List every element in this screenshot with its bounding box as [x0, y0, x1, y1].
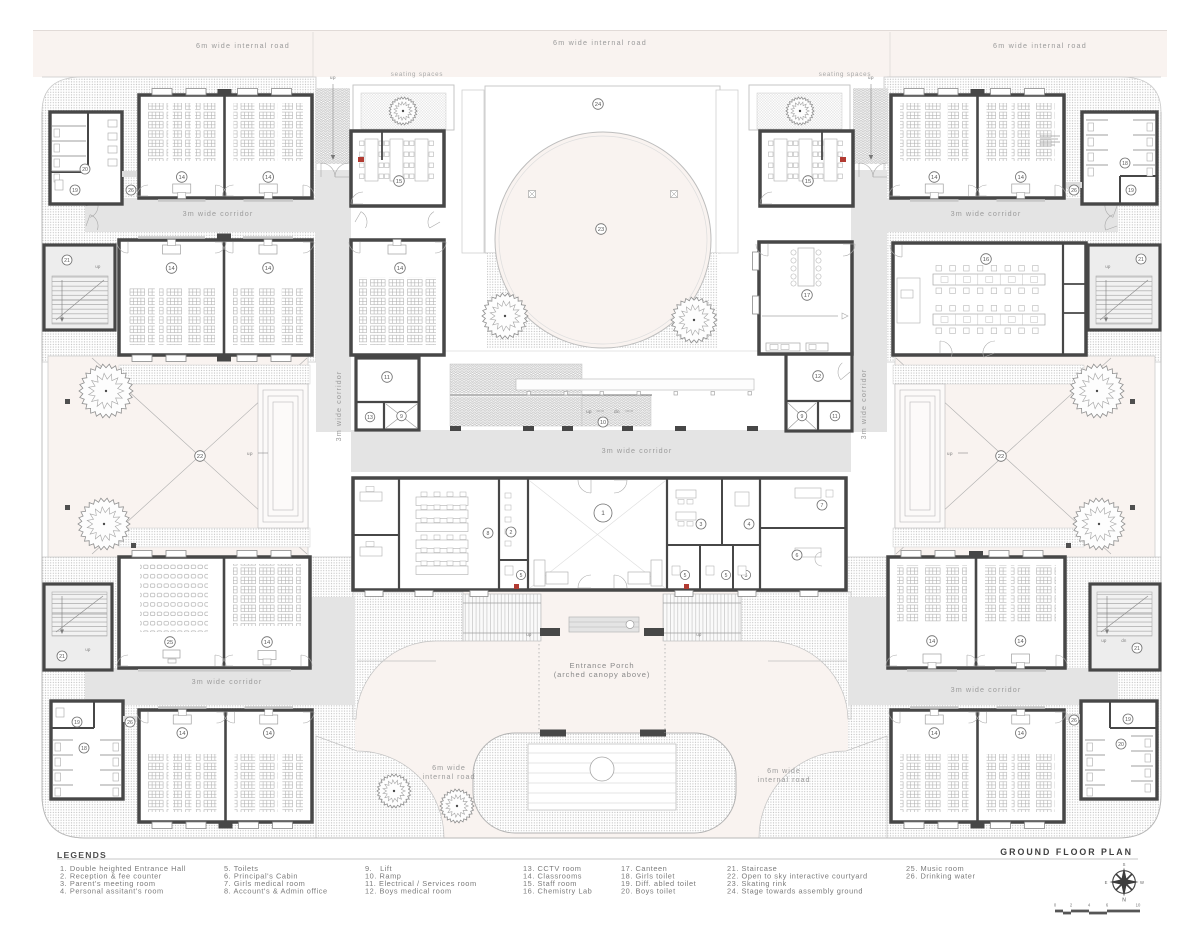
svg-text:3m wide corridor: 3m wide corridor — [602, 446, 673, 455]
svg-text:1: 1 — [601, 510, 605, 517]
svg-text:LEGENDS: LEGENDS — [57, 850, 107, 860]
svg-text:6: 6 — [796, 553, 799, 559]
svg-text:16: 16 — [983, 257, 989, 263]
svg-text:6m wide internal road: 6m wide internal road — [196, 41, 290, 50]
svg-text:3m wide corridor: 3m wide corridor — [859, 369, 868, 440]
svg-text:3m wide corridor: 3m wide corridor — [951, 209, 1022, 218]
svg-text:up: up — [696, 632, 702, 637]
svg-text:2: 2 — [510, 530, 513, 536]
svg-text:26. Drinking water: 26. Drinking water — [906, 872, 975, 881]
svg-text:8: 8 — [487, 531, 490, 537]
svg-text:26: 26 — [128, 188, 134, 194]
svg-text:24: 24 — [595, 102, 602, 108]
svg-text:18: 18 — [81, 746, 87, 752]
svg-text:E: E — [1105, 880, 1108, 885]
svg-text:15: 15 — [396, 179, 402, 185]
svg-text:22: 22 — [197, 454, 203, 460]
svg-text:10: 10 — [600, 420, 606, 426]
svg-text:25: 25 — [167, 640, 173, 646]
svg-text:14: 14 — [265, 175, 272, 181]
svg-text:14: 14 — [168, 266, 175, 272]
svg-text:14: 14 — [179, 731, 186, 737]
svg-text:5: 5 — [684, 573, 687, 579]
svg-text:internal road: internal road — [758, 775, 811, 784]
svg-text:21: 21 — [1134, 646, 1140, 652]
svg-text:up: up — [247, 451, 253, 456]
svg-text:up: up — [947, 451, 953, 456]
svg-text:internal road: internal road — [423, 772, 476, 781]
svg-text:5: 5 — [725, 573, 728, 579]
svg-text:14: 14 — [265, 266, 272, 272]
svg-text:12. Boys medical room: 12. Boys medical room — [365, 887, 452, 896]
svg-text:20: 20 — [1118, 742, 1124, 748]
svg-text:6m wide: 6m wide — [767, 766, 801, 775]
svg-text:14: 14 — [929, 639, 936, 645]
svg-text:Entrance Porch: Entrance Porch — [570, 661, 635, 670]
svg-text:16. Chemistry Lab: 16. Chemistry Lab — [523, 887, 592, 896]
svg-text:up: up — [868, 75, 874, 80]
svg-text:23: 23 — [598, 227, 604, 233]
svg-text:21: 21 — [1138, 257, 1144, 263]
svg-text:24. Stage towards assembly gro: 24. Stage towards assembly ground — [727, 887, 863, 896]
svg-text:19: 19 — [72, 188, 78, 194]
svg-text:14: 14 — [397, 266, 404, 272]
svg-text:19: 19 — [1128, 188, 1134, 194]
svg-text:11: 11 — [832, 414, 837, 420]
svg-text:N: N — [1122, 898, 1126, 904]
svg-text:14: 14 — [1018, 175, 1025, 181]
svg-text:21: 21 — [64, 258, 70, 264]
svg-text:14: 14 — [931, 175, 938, 181]
svg-text:7: 7 — [821, 503, 824, 509]
svg-text:26: 26 — [127, 720, 133, 726]
svg-text:19: 19 — [1125, 717, 1131, 723]
svg-text:20: 20 — [82, 167, 88, 173]
svg-text:3m wide corridor: 3m wide corridor — [192, 677, 263, 686]
svg-text:9: 9 — [400, 414, 403, 420]
svg-text:8. Account's & Admin office: 8. Account's & Admin office — [224, 887, 328, 896]
svg-text:9: 9 — [801, 414, 804, 420]
svg-text:up: up — [85, 647, 91, 652]
svg-text:26: 26 — [1071, 718, 1077, 724]
svg-text:6m wide internal road: 6m wide internal road — [993, 41, 1087, 50]
svg-text:3m wide corridor: 3m wide corridor — [183, 209, 254, 218]
svg-text:S: S — [1123, 862, 1126, 867]
svg-text:14: 14 — [179, 175, 186, 181]
svg-text:14: 14 — [264, 640, 271, 646]
svg-text:22: 22 — [998, 454, 1004, 460]
svg-text:14: 14 — [1017, 639, 1024, 645]
svg-text:18: 18 — [1122, 161, 1128, 167]
svg-text:seating spaces: seating spaces — [391, 71, 443, 78]
svg-text:up: up — [1105, 264, 1111, 269]
svg-text:up: up — [586, 409, 592, 414]
svg-text:(arched canopy above): (arched canopy above) — [554, 670, 651, 679]
svg-text:dn: dn — [1121, 638, 1127, 643]
svg-text:up: up — [95, 264, 101, 269]
svg-text:13: 13 — [367, 415, 373, 421]
svg-text:W: W — [1140, 880, 1144, 885]
svg-text:6m wide internal road: 6m wide internal road — [553, 38, 647, 47]
svg-text:up: up — [330, 75, 336, 80]
svg-text:14: 14 — [931, 731, 938, 737]
svg-text:10: 10 — [1136, 903, 1141, 908]
svg-text:19: 19 — [74, 720, 80, 726]
svg-text:seating spaces: seating spaces — [819, 71, 871, 78]
svg-text:6m wide: 6m wide — [432, 763, 466, 772]
svg-text:3: 3 — [700, 522, 703, 528]
svg-text:20. Boys toilet: 20. Boys toilet — [621, 887, 676, 896]
svg-text:15: 15 — [805, 179, 811, 185]
svg-text:14: 14 — [266, 731, 273, 737]
svg-text:3m wide corridor: 3m wide corridor — [951, 685, 1022, 694]
svg-text:4. Personal assitant's room: 4. Personal assitant's room — [60, 887, 164, 896]
svg-text:11: 11 — [384, 375, 390, 381]
svg-text:21: 21 — [59, 654, 65, 660]
svg-text:5: 5 — [520, 573, 523, 579]
svg-text:17: 17 — [804, 293, 810, 299]
svg-text:GROUND FLOOR PLAN: GROUND FLOOR PLAN — [1000, 847, 1133, 857]
svg-text:26: 26 — [1071, 188, 1077, 194]
svg-text:dn: dn — [614, 409, 620, 414]
svg-text:up: up — [1101, 638, 1107, 643]
svg-text:3m wide corridor: 3m wide corridor — [334, 371, 343, 442]
svg-text:up: up — [526, 632, 532, 637]
svg-text:14: 14 — [1018, 731, 1025, 737]
svg-text:4: 4 — [748, 522, 751, 528]
svg-text:12: 12 — [815, 374, 821, 380]
